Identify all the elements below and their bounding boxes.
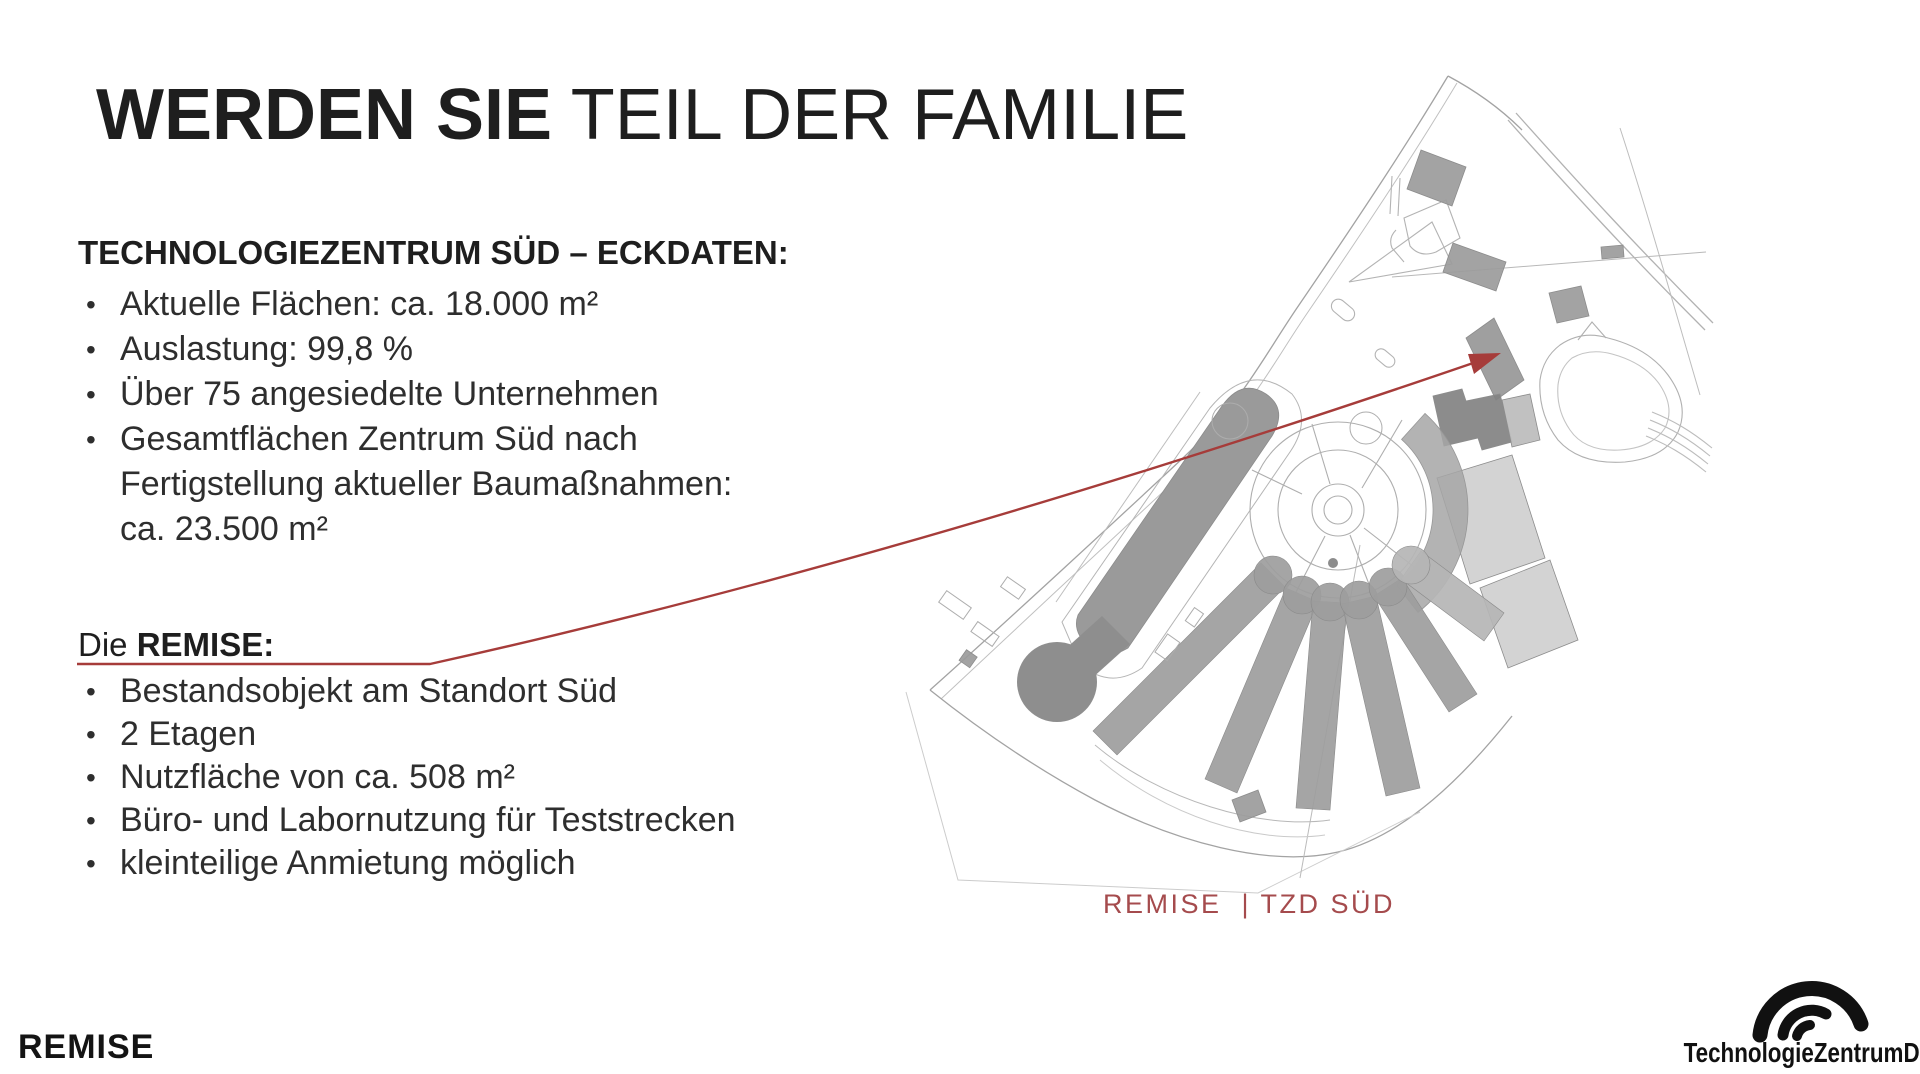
bullet-text: Über 75 angesiedelte Unternehmen <box>120 372 659 417</box>
map-fan-buildings <box>1093 546 1504 810</box>
building <box>1443 243 1506 291</box>
building <box>1601 245 1624 259</box>
bullet-text: Büro- und Labornutzung für Teststrecken <box>120 799 736 842</box>
remise-heading-lead: Die <box>78 626 137 663</box>
bullet-icon: • <box>86 417 120 552</box>
building <box>959 650 977 668</box>
map-circle-building <box>1017 616 1130 722</box>
list-item: •Bestandsobjekt am Standort Süd <box>86 670 736 713</box>
bullet-text: Gesamtflächen Zentrum Süd nach Fertigste… <box>120 417 732 552</box>
list-item: •2 Etagen <box>86 713 736 756</box>
map-plot-outlines <box>1329 176 1460 370</box>
map-small-details <box>939 403 1382 661</box>
building-light <box>1437 455 1545 584</box>
bullet-text: Auslastung: 99,8 % <box>120 327 413 372</box>
bullet-text: Bestandsobjekt am Standort Süd <box>120 670 617 713</box>
map-caption: REMISE | TZD SÜD <box>1103 889 1395 920</box>
bullet-icon: • <box>86 327 120 372</box>
list-item: •kleinteilige Anmietung möglich <box>86 842 736 885</box>
map-long-building <box>1056 380 1302 678</box>
map-buildings <box>959 150 1624 822</box>
remise-heading-bold: REMISE: <box>137 626 275 663</box>
list-item: •Auslastung: 99,8 % <box>86 327 732 372</box>
building <box>1407 150 1466 206</box>
building <box>1549 286 1589 323</box>
bullet-text: Aktuelle Flächen: ca. 18.000 m² <box>120 282 598 327</box>
central-court <box>1250 413 1468 612</box>
building-light <box>1502 394 1540 447</box>
footer-brand: REMISE <box>18 1028 154 1067</box>
bullet-icon: • <box>86 713 120 756</box>
bullet-icon: • <box>86 372 120 417</box>
map-boundary <box>906 76 1713 893</box>
remise-heading: Die REMISE: <box>78 626 274 664</box>
bullet-icon: • <box>86 842 120 885</box>
bullet-icon: • <box>86 670 120 713</box>
building-light <box>1480 560 1578 668</box>
building-dark <box>1433 389 1512 450</box>
bullet-icon: • <box>86 799 120 842</box>
title-rest: TEIL DER FAMILIE <box>552 75 1188 155</box>
tzd-logo-text: TechnologieZentrumDresden <box>1684 1037 1914 1069</box>
remise-list: •Bestandsobjekt am Standort Süd •2 Etage… <box>86 670 736 885</box>
tzd-logo-arcs-icon <box>1738 966 1898 1046</box>
arrowhead-icon <box>1468 353 1501 374</box>
bullet-icon: • <box>86 282 120 327</box>
list-item: •Über 75 angesiedelte Unternehmen <box>86 372 732 417</box>
bullet-text: 2 Etagen <box>120 713 256 756</box>
list-item: •Büro- und Labornutzung für Teststrecken <box>86 799 736 842</box>
eckdaten-list: •Aktuelle Flächen: ca. 18.000 m² •Auslas… <box>86 282 732 552</box>
list-item: •Nutzfläche von ca. 508 m² <box>86 756 736 799</box>
bullet-text: Nutzfläche von ca. 508 m² <box>120 756 515 799</box>
building <box>1232 790 1266 822</box>
slide: { "slide": { "title": { "emphasis": "WER… <box>0 0 1920 1074</box>
list-item: •Gesamtflächen Zentrum Süd nach Fertigst… <box>86 417 732 552</box>
bullet-text: kleinteilige Anmietung möglich <box>120 842 575 885</box>
bullet-icon: • <box>86 756 120 799</box>
map-oval-court <box>1540 322 1712 472</box>
eckdaten-heading: TECHNOLOGIEZENTRUM SÜD – ECKDATEN: <box>78 234 789 272</box>
remise-building <box>1466 318 1524 400</box>
page-title: WERDEN SIE TEIL DER FAMILIE <box>96 74 1188 157</box>
list-item: •Aktuelle Flächen: ca. 18.000 m² <box>86 282 732 327</box>
title-emphasis: WERDEN SIE <box>96 75 552 155</box>
